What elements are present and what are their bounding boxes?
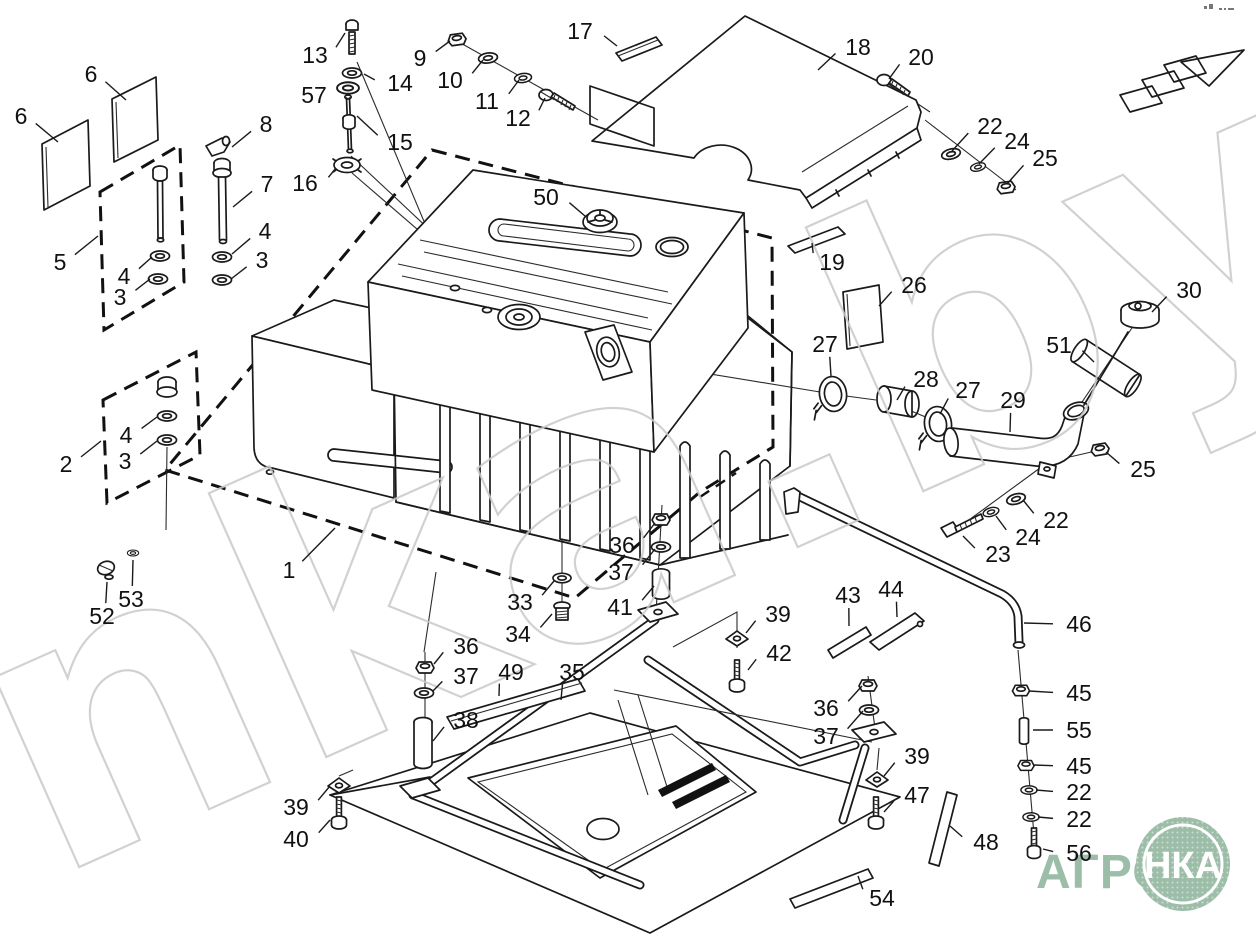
callout-22: 22 [1066,806,1092,832]
callout-53: 53 [118,586,144,612]
callout-36: 36 [813,695,839,721]
pad-6-right [112,77,158,162]
callout-leader-53 [132,560,133,586]
callout-19: 19 [819,249,845,275]
callout-35: 35 [559,659,585,685]
parts-diagram-canvas: nka.by АГРО НКА 665131457871516434391011… [0,0,1256,940]
callout-17: 17 [567,18,593,44]
callout-41: 41 [607,594,633,620]
kit-box-5-outline [100,145,184,330]
callout-45: 45 [1066,753,1092,779]
callout-leader-4 [142,417,157,428]
callout-leader-11 [509,80,519,94]
callout-48: 48 [973,829,999,855]
callout-50: 50 [533,184,559,210]
callout-leader-22 [1038,817,1053,818]
callout-22: 22 [1066,779,1092,805]
callout-39: 39 [765,601,791,627]
callout-4: 4 [259,218,272,244]
callout-37: 37 [813,723,839,749]
callout-leader-14 [364,74,375,80]
callout-leader-17 [604,36,617,46]
callout-3: 3 [256,247,269,273]
callout-8: 8 [260,111,273,137]
callout-leader-4 [139,257,152,269]
callout-40: 40 [283,826,309,852]
callout-leader-4 [232,238,250,254]
callout-leader-16 [328,168,336,177]
callout-11: 11 [475,88,499,114]
grommet-16 [333,158,361,173]
callout-6: 6 [85,61,98,87]
callout-leader-10 [472,60,483,73]
callout-51: 51 [1046,332,1072,358]
callout-43: 43 [835,582,861,608]
callout-leader-45 [1034,765,1053,766]
bolt-7-kit [206,137,232,286]
callout-39: 39 [283,794,309,820]
callout-55: 55 [1066,717,1092,743]
callout-leader-15 [357,116,378,135]
callout-27: 27 [955,377,981,403]
callout-20: 20 [908,44,934,70]
brand-logo: АГРО НКА [1036,817,1230,911]
callout-leader-48 [950,826,962,837]
callout-14: 14 [387,70,413,96]
callout-leader-2 [81,441,101,457]
callout-30: 30 [1176,277,1202,303]
callout-leader-8 [232,131,251,147]
strip-54 [790,869,873,908]
callout-leader-22 [1036,790,1053,791]
callout-49: 49 [498,659,524,685]
callout-leader-46 [1024,623,1053,624]
callout-2: 2 [60,451,73,477]
strip-43 [828,627,871,658]
callout-22: 22 [1043,507,1069,533]
callout-7: 7 [261,171,274,197]
callout-16: 16 [292,170,318,196]
callout-3: 3 [114,284,127,310]
strip-44 [870,613,924,650]
callout-24: 24 [1004,128,1030,154]
callout-33: 33 [507,589,533,615]
sender-rod-15 [343,95,355,153]
callout-25: 25 [1032,145,1058,171]
callout-36: 36 [609,532,635,558]
sender-bolt-stack [333,20,362,173]
callout-leader-44 [896,602,897,617]
callout-leader-9 [436,41,450,52]
callout-5: 5 [54,249,67,275]
callout-47: 47 [904,782,930,808]
callout-leader-36 [848,686,862,701]
pad-6-left [42,120,90,210]
callout-leader-6 [36,123,58,142]
callout-6: 6 [15,103,28,129]
callout-38: 38 [453,707,479,733]
exploded-parts-diagram: nka.by АГРО НКА 665131457871516434391011… [0,0,1256,940]
callout-23: 23 [985,541,1011,567]
callout-27: 27 [812,331,838,357]
callout-15: 15 [387,129,413,155]
callout-57: 57 [301,82,327,108]
callout-leader-3 [231,267,247,279]
callout-37: 37 [453,663,479,689]
callout-56: 56 [1066,840,1092,866]
callout-12: 12 [505,105,531,131]
bolt-kit-5 [149,166,170,284]
logo-badge: НКА [1144,845,1222,887]
callout-leader-37 [848,711,863,729]
callout-leader-5 [75,236,98,255]
callout-28: 28 [913,366,939,392]
callout-25: 25 [1130,456,1156,482]
callout-leader-7 [233,191,252,207]
callout-1: 1 [283,557,296,583]
callout-9: 9 [414,45,427,71]
spacer-55 [1020,718,1029,744]
callout-54: 54 [869,885,895,911]
callout-leader-39 [884,763,895,776]
callout-42: 42 [766,640,792,666]
callout-leader-20 [889,64,900,79]
callout-4: 4 [120,422,133,448]
callout-44: 44 [878,576,904,602]
callout-39: 39 [904,743,930,769]
callout-24: 24 [1015,524,1041,550]
callout-13: 13 [302,42,328,68]
callout-34: 34 [505,621,531,647]
callout-leader-45 [1029,691,1053,692]
callout-10: 10 [437,67,463,93]
callout-36: 36 [453,633,479,659]
callout-22: 22 [977,113,1003,139]
callout-46: 46 [1066,611,1092,637]
callout-leader-3 [135,279,150,290]
callout-45: 45 [1066,680,1092,706]
callout-26: 26 [901,272,927,298]
callout-leader-13 [336,33,345,47]
callout-18: 18 [845,34,871,60]
callout-29: 29 [1000,387,1026,413]
callout-3: 3 [119,448,132,474]
callout-52: 52 [89,603,115,629]
callout-leader-29 [1010,413,1011,432]
callout-37: 37 [608,559,634,585]
